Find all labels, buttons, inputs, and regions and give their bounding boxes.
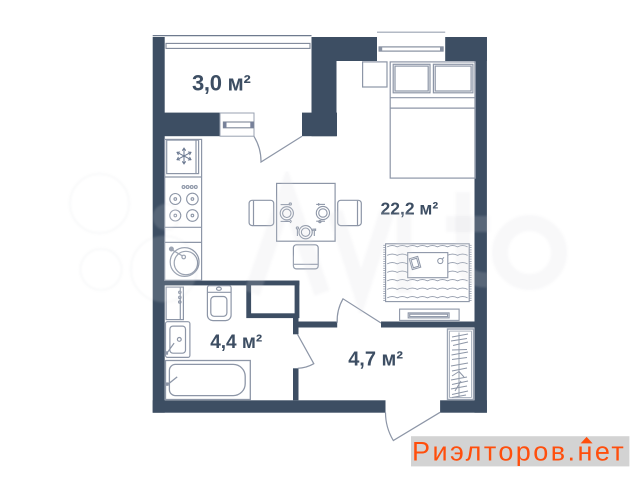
svg-text:4,4 м²: 4,4 м²: [210, 332, 262, 353]
svg-text:4,7 м²: 4,7 м²: [348, 349, 403, 371]
svg-text:3,0 м²: 3,0 м²: [192, 71, 251, 96]
svg-text:Риэлторов.нет: Риэлторов.нет: [412, 436, 626, 466]
